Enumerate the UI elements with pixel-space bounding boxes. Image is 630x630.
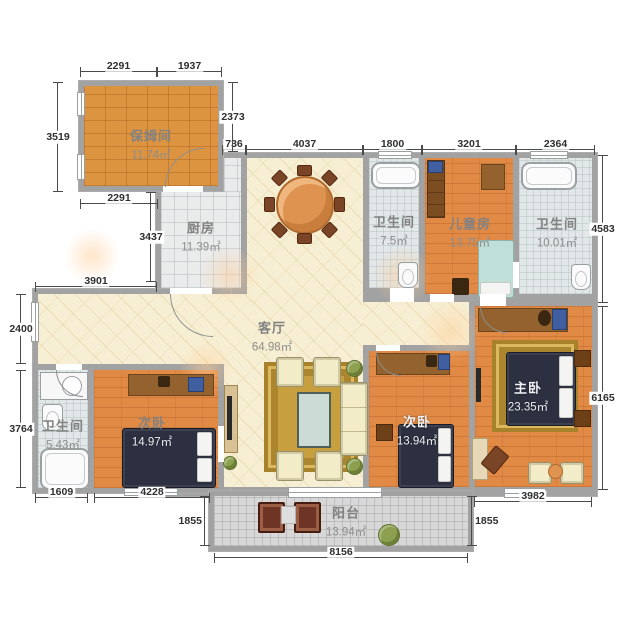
pillow <box>197 432 212 456</box>
dim-bath-a-top: 1800 <box>363 149 422 150</box>
master-monitor <box>552 309 567 330</box>
dim-children-top: 3201 <box>422 149 516 150</box>
window <box>77 154 85 180</box>
master-armchair <box>560 462 584 484</box>
armchair <box>276 357 304 387</box>
balcony-sliding-door <box>288 487 382 498</box>
floor-plan-canvas: 保姆间11.74㎡ 厨房11.39㎡ 卫生间7.5㎡ 儿童房13.75㎡ 卫生间… <box>0 0 630 630</box>
pillow <box>438 456 451 482</box>
nightstand <box>376 424 393 441</box>
bathtub <box>40 448 90 490</box>
room-label-children: 儿童房13.75㎡ <box>449 214 491 251</box>
children-cabinet <box>481 164 505 190</box>
dining-chair <box>297 233 312 244</box>
armchair <box>315 451 343 481</box>
room-label-master: 主卧23.35㎡ <box>508 378 548 415</box>
window <box>530 151 568 159</box>
dim-balcony-left: 1855 <box>204 496 205 546</box>
plant <box>223 456 237 470</box>
bath-a-door-gap <box>390 288 414 302</box>
dim-kitchen-top: 736 <box>222 149 246 150</box>
pillow <box>559 356 573 386</box>
children-door-gap <box>430 294 454 302</box>
master-door-gap <box>480 294 506 306</box>
room-label-bedroom-a: 次卧14.97㎡ <box>132 413 172 450</box>
pillow <box>559 388 573 418</box>
dining-chair <box>297 165 312 176</box>
bathtub <box>521 162 577 190</box>
room-label-bath-a: 卫生间7.5㎡ <box>373 212 415 249</box>
desk-chair <box>538 310 551 326</box>
armchair <box>276 451 304 481</box>
dim-master-bottom: 3982 <box>474 501 592 502</box>
room-label-living: 客厅64.98㎡ <box>252 318 292 355</box>
dining-chair <box>264 197 275 212</box>
side-table <box>548 464 563 479</box>
sofa <box>340 382 368 456</box>
desk-item <box>158 376 170 387</box>
tv <box>227 396 232 440</box>
room-label-bath-b: 卫生间10.01㎡ <box>536 214 578 251</box>
window <box>77 92 85 116</box>
dim-living-top: 4037 <box>246 149 363 150</box>
dim-nanny-right: 2373 <box>232 82 233 152</box>
dim-nanny-top-left: 2291 <box>80 71 157 72</box>
kitchen-floor-notch <box>224 158 241 192</box>
window <box>378 151 412 159</box>
bedroom-a-door-gap <box>218 426 224 462</box>
dim-nanny-top-right: 1937 <box>157 71 222 72</box>
bathtub <box>371 162 421 189</box>
desk-item <box>426 355 437 367</box>
children-stool <box>452 278 469 295</box>
room-label-balcony: 阳台13.94㎡ <box>326 503 366 540</box>
children-blue-item <box>428 161 443 173</box>
dim-bath-c-bottom: 1609 <box>35 497 88 498</box>
dim-hallway-left: 2400 <box>20 294 21 364</box>
dim-nanny-left: 3519 <box>57 82 58 192</box>
coffee-table <box>297 392 331 448</box>
room-label-bath-c: 卫生间5.43㎡ <box>42 416 84 453</box>
toilet <box>398 262 418 288</box>
bedroom-a-monitor <box>188 377 204 392</box>
bath-b-door-gap <box>513 262 519 288</box>
nightstand <box>574 410 591 427</box>
dim-bath-b-top: 2364 <box>516 149 595 150</box>
dim-bedroom-a-bottom: 4228 <box>94 497 210 498</box>
bedroom-b-monitor <box>438 354 450 370</box>
plant <box>346 360 363 377</box>
dim-balcony-bottom: 8156 <box>214 557 468 558</box>
room-label-nanny: 保姆间11.74㎡ <box>130 126 172 163</box>
balcony-table <box>281 506 296 524</box>
balcony-chair <box>294 502 321 533</box>
dim-bath-c-left: 3764 <box>20 370 21 488</box>
toilet <box>571 264 591 290</box>
plant <box>378 524 400 546</box>
room-label-kitchen: 厨房11.39㎡ <box>181 218 220 255</box>
dim-kitchen-left: 3437 <box>150 192 151 282</box>
pillow <box>197 458 212 482</box>
nightstand <box>574 350 591 367</box>
dim-hallway-top: 3901 <box>35 286 157 287</box>
armchair <box>313 357 341 387</box>
dining-chair <box>334 197 345 212</box>
plant <box>346 458 363 475</box>
dim-right-lower: 6165 <box>602 306 603 490</box>
dim-balcony-right: 1855 <box>471 496 472 546</box>
pillow <box>438 428 451 454</box>
dim-right-upper: 4583 <box>602 155 603 303</box>
master-tv <box>476 368 481 402</box>
room-label-bedroom-b: 次卧13.94㎡ <box>397 412 437 449</box>
dim-nanny-bottom: 2291 <box>80 203 158 204</box>
